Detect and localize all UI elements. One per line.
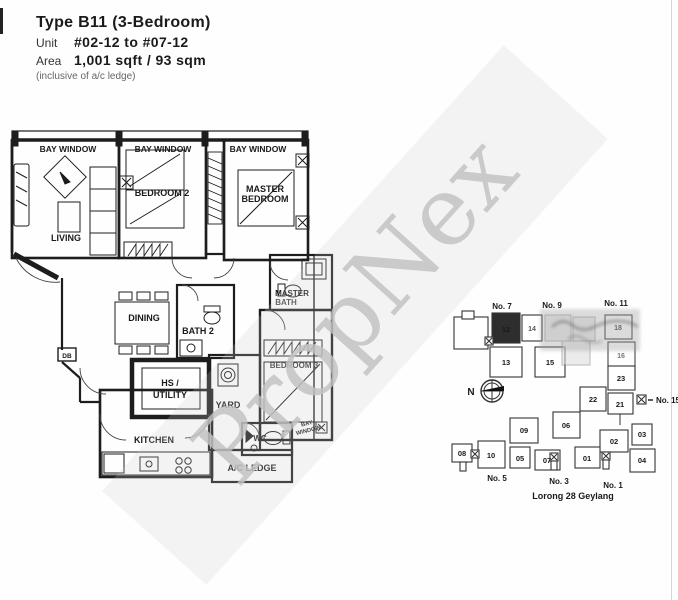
unit-02-label: 02	[610, 437, 618, 446]
site-plan: No. 7 No. 9 No. 11 No. 15 No. 5 No. 3 No…	[440, 295, 678, 507]
bedroom3-furniture	[264, 340, 327, 433]
unit-18-label: 18	[614, 325, 622, 332]
yard-label: YARD	[216, 400, 241, 410]
master-bedroom-label-2: BEDROOM	[242, 194, 289, 204]
unit-01-label: 01	[583, 454, 591, 463]
block-no11-label: No. 11	[604, 299, 628, 308]
unit-08-label: 08	[458, 449, 466, 458]
unit-10-label: 10	[487, 451, 495, 460]
area-value: 1,001 sqft / 93 sqm	[74, 52, 206, 68]
unit-05-label: 05	[516, 454, 524, 463]
block-no5-label: No. 5	[487, 474, 507, 483]
area-label: Area	[36, 54, 74, 68]
unit-07-label: 07	[543, 456, 551, 465]
unit-09-label: 09	[520, 426, 528, 435]
bay-window-2-label: BAY WINDOW	[135, 144, 193, 154]
dining-label: DINING	[128, 313, 160, 323]
ac-ledge-label: A/C LEDGE	[227, 463, 276, 473]
master-bath-label-1: MASTER	[275, 289, 309, 298]
street-label: Lorong 28 Geylang	[532, 491, 614, 501]
hs-utility-label-2: UTILITY	[153, 390, 187, 400]
wc-label: WC	[253, 434, 267, 443]
scan-artifact	[0, 8, 3, 34]
page-title: Type B11 (3-Bedroom)	[36, 14, 211, 32]
bedroom3-label: BEDROOM 3	[270, 361, 319, 370]
block-no1-label: No. 1	[603, 481, 623, 490]
dining-furniture	[115, 292, 169, 354]
door-arcs	[16, 258, 288, 440]
unit-22-label: 22	[589, 395, 597, 404]
hs-utility-label-1: HS /	[161, 378, 179, 388]
bedroom2-furniture	[120, 150, 184, 258]
header: Type B11 (3-Bedroom) Unit #02-12 to #07-…	[36, 14, 211, 82]
siteplan-bottom-row	[452, 412, 655, 472]
unit-14-label: 14	[528, 326, 536, 333]
unit-03-label: 03	[638, 430, 646, 439]
master-bedroom-label-1: MASTER	[246, 184, 285, 194]
unit-label: Unit	[36, 36, 74, 50]
living-label: LIVING	[51, 233, 81, 243]
unit-12-label: 12	[502, 325, 510, 334]
kitchen-fixtures	[102, 452, 210, 475]
wardrobe-strip	[208, 152, 222, 224]
yard-fixtures	[218, 364, 238, 386]
unit-21-label: 21	[616, 400, 624, 409]
unit-04-label: 04	[638, 456, 647, 465]
compass-n-label: N	[467, 387, 474, 398]
unit-23-label: 23	[617, 374, 625, 383]
kitchen-label: KITCHEN	[134, 435, 174, 445]
block-no7-label: No. 7	[492, 302, 512, 311]
bay-window-3-label: BAY WINDOW	[230, 144, 288, 154]
floorplan-drawing: BAY WINDOW BAY WINDOW BAY WINDOW LIVING …	[2, 112, 342, 497]
block-no3-label: No. 3	[549, 477, 569, 486]
unit-06-label: 06	[562, 421, 570, 430]
unit-13-label: 13	[502, 358, 510, 367]
block-no15-label: No. 15	[656, 396, 678, 405]
block-no9-label: No. 9	[542, 301, 562, 310]
bay-window-1-label: BAY WINDOW	[40, 144, 98, 154]
db-label: DB	[62, 353, 72, 360]
area-note: (inclusive of a/c ledge)	[36, 71, 211, 82]
unit-16-label: 16	[617, 353, 625, 360]
bath2-label: BATH 2	[182, 326, 214, 336]
bedroom2-label: BEDROOM 2	[135, 188, 190, 198]
unit-15-label: 15	[546, 358, 554, 367]
compass-icon	[480, 380, 504, 402]
unit-value: #02-12 to #07-12	[74, 34, 189, 50]
master-bath-label-2: BATH	[275, 298, 297, 307]
stamp-smudge	[540, 309, 640, 351]
floorplan-page: Type B11 (3-Bedroom) Unit #02-12 to #07-…	[0, 0, 678, 600]
